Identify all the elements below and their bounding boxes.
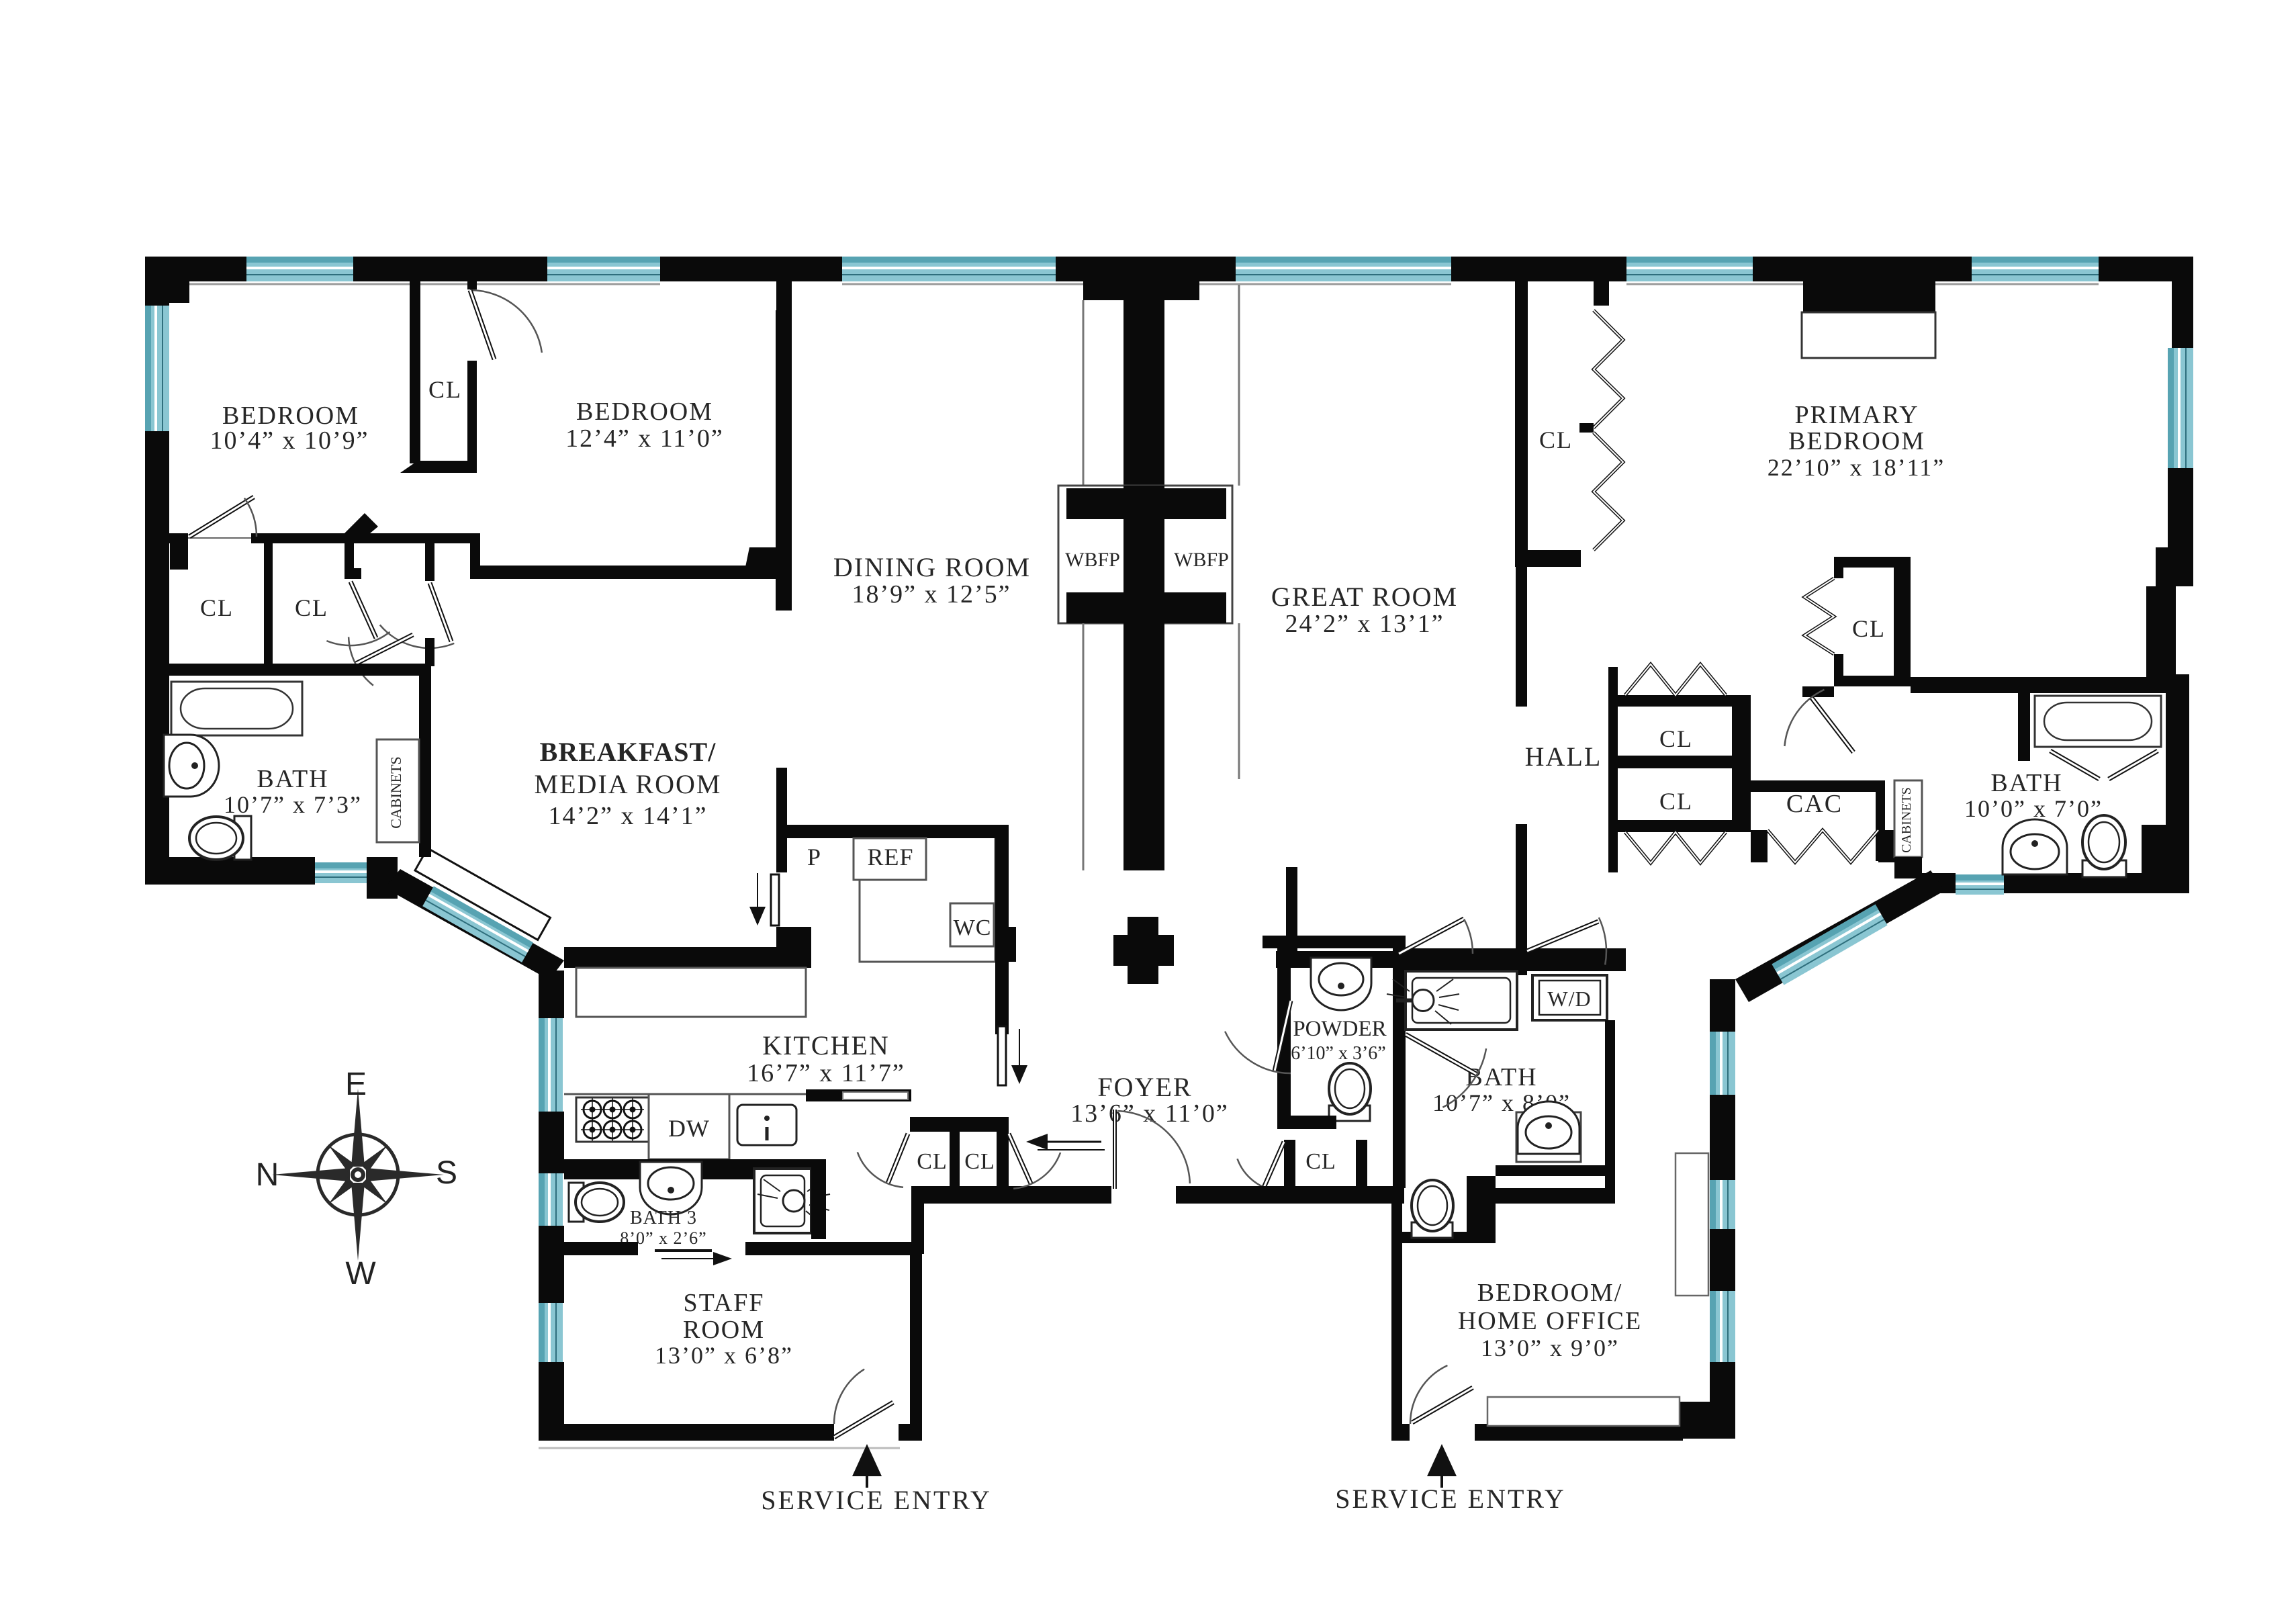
svg-text:10’7” x 7’3”: 10’7” x 7’3”	[224, 791, 362, 818]
svg-text:6’10” x 3’6”: 6’10” x 3’6”	[1291, 1043, 1386, 1064]
svg-text:13’6” x 11’0”: 13’6” x 11’0”	[1070, 1099, 1229, 1128]
svg-text:CL: CL	[1659, 725, 1693, 752]
svg-text:16’7” x 11’7”: 16’7” x 11’7”	[747, 1059, 905, 1087]
svg-text:CL: CL	[1305, 1149, 1336, 1174]
svg-text:E: E	[345, 1067, 367, 1102]
svg-text:KITCHEN: KITCHEN	[762, 1030, 890, 1061]
svg-text:13’0” x 6’8”: 13’0” x 6’8”	[655, 1342, 793, 1369]
svg-text:12’4” x 11’0”: 12’4” x 11’0”	[565, 424, 724, 453]
svg-text:WBFP: WBFP	[1174, 549, 1229, 571]
svg-text:BEDROOM: BEDROOM	[222, 402, 359, 430]
svg-text:BEDROOM: BEDROOM	[1788, 427, 1925, 455]
svg-text:W/D: W/D	[1547, 987, 1591, 1011]
svg-text:CAC: CAC	[1786, 790, 1843, 818]
svg-text:CL: CL	[1539, 426, 1573, 453]
svg-text:SERVICE ENTRY: SERVICE ENTRY	[1335, 1484, 1566, 1514]
svg-text:10’0” x 7’0”: 10’0” x 7’0”	[1964, 795, 2103, 822]
svg-text:N: N	[256, 1157, 279, 1193]
svg-text:18’9” x 12’5”: 18’9” x 12’5”	[852, 580, 1011, 608]
svg-text:DW: DW	[668, 1115, 710, 1142]
svg-text:ROOM: ROOM	[683, 1316, 765, 1344]
svg-text:CABINETS: CABINETS	[387, 756, 404, 829]
svg-text:W: W	[345, 1256, 376, 1292]
svg-text:BEDROOM: BEDROOM	[576, 398, 713, 426]
svg-text:GREAT ROOM: GREAT ROOM	[1271, 582, 1458, 612]
svg-text:13’0” x 9’0”: 13’0” x 9’0”	[1481, 1335, 1619, 1361]
svg-text:22’10” x 18’11”: 22’10” x 18’11”	[1768, 454, 1945, 481]
svg-text:CL: CL	[200, 594, 234, 621]
svg-text:CABINETS: CABINETS	[1899, 787, 1914, 853]
svg-text:14’2” x 14’1”: 14’2” x 14’1”	[548, 802, 707, 830]
svg-text:BATH: BATH	[1990, 769, 2062, 797]
svg-text:CL: CL	[964, 1149, 995, 1174]
svg-text:HOME OFFICE: HOME OFFICE	[1458, 1307, 1642, 1335]
svg-text:S: S	[436, 1155, 457, 1191]
svg-text:POWDER: POWDER	[1293, 1017, 1386, 1041]
svg-text:CL: CL	[917, 1149, 947, 1174]
svg-text:HALL: HALL	[1525, 741, 1602, 772]
svg-text:BEDROOM/: BEDROOM/	[1477, 1279, 1623, 1307]
svg-text:BATH: BATH	[257, 765, 328, 793]
svg-text:P: P	[807, 844, 822, 870]
svg-text:10’4” x 10’9”: 10’4” x 10’9”	[210, 426, 369, 455]
svg-text:BATH: BATH	[1465, 1063, 1537, 1091]
svg-text:WBFP: WBFP	[1065, 549, 1120, 571]
svg-text:REF: REF	[867, 844, 913, 870]
svg-text:CL: CL	[428, 376, 462, 403]
svg-text:DINING ROOM: DINING ROOM	[833, 552, 1031, 582]
svg-text:CL: CL	[1852, 615, 1886, 642]
svg-text:24’2” x 13’1”: 24’2” x 13’1”	[1285, 610, 1444, 638]
svg-text:PRIMARY: PRIMARY	[1794, 401, 1919, 429]
svg-text:WC: WC	[954, 915, 992, 940]
svg-text:CL: CL	[1659, 788, 1693, 815]
svg-text:STAFF: STAFF	[683, 1289, 764, 1317]
svg-text:MEDIA ROOM: MEDIA ROOM	[535, 769, 722, 799]
svg-text:CL: CL	[295, 594, 328, 621]
svg-text:SERVICE ENTRY: SERVICE ENTRY	[761, 1485, 992, 1515]
svg-text:BATH 3: BATH 3	[630, 1208, 697, 1228]
svg-text:FOYER: FOYER	[1097, 1072, 1192, 1102]
svg-text:BREAKFAST/: BREAKFAST/	[540, 737, 717, 767]
